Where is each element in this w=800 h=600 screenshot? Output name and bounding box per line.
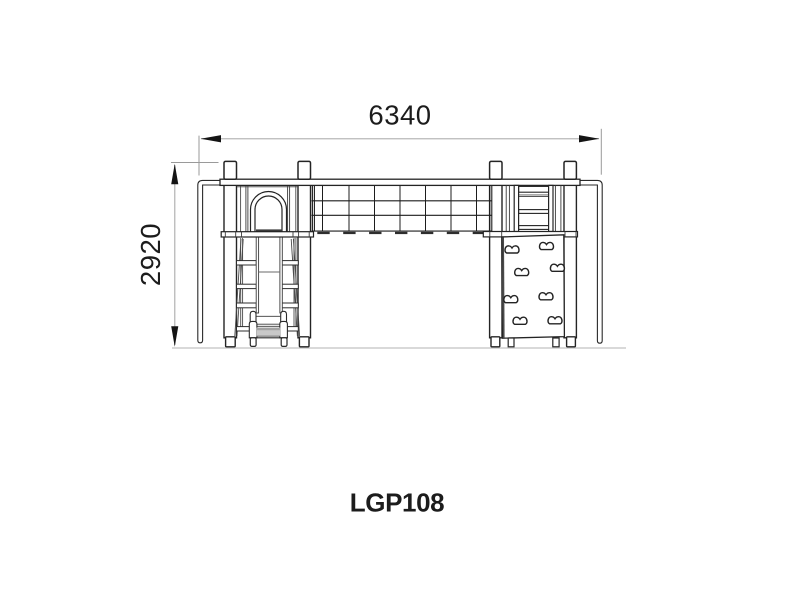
svg-text:6340: 6340 — [368, 100, 431, 131]
svg-text:2920: 2920 — [135, 223, 166, 286]
svg-text:LGP108: LGP108 — [350, 487, 444, 517]
